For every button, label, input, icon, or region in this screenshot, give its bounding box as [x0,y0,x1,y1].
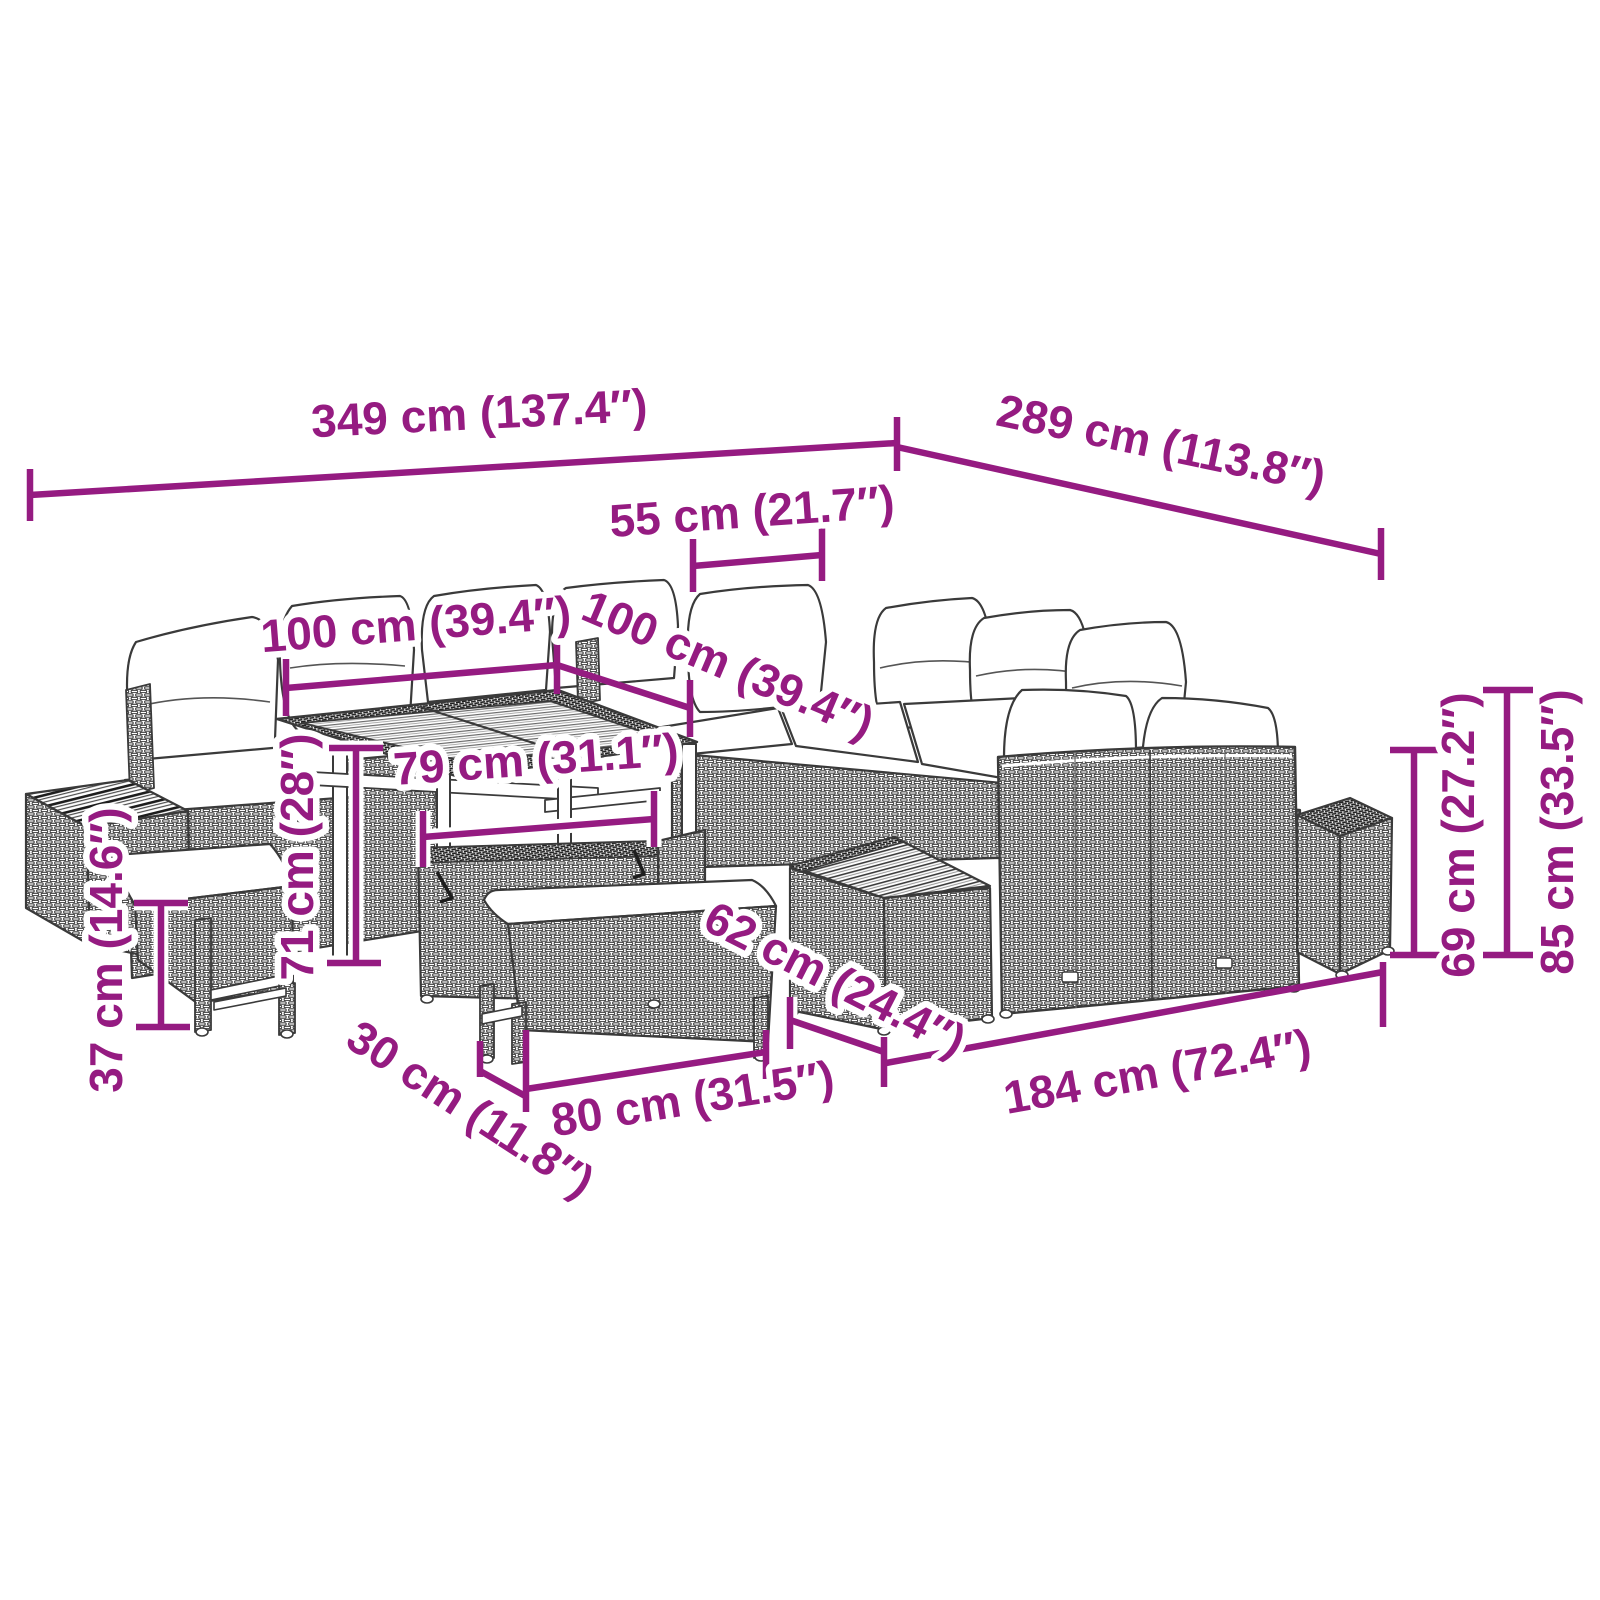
svg-text:69 cm (27.2″): 69 cm (27.2″) [1432,692,1484,977]
svg-text:71 cm (28″): 71 cm (28″) [271,733,323,980]
svg-text:85 cm (33.5″): 85 cm (33.5″) [1531,689,1583,974]
svg-text:37 cm (14.6″): 37 cm (14.6″) [80,807,132,1092]
